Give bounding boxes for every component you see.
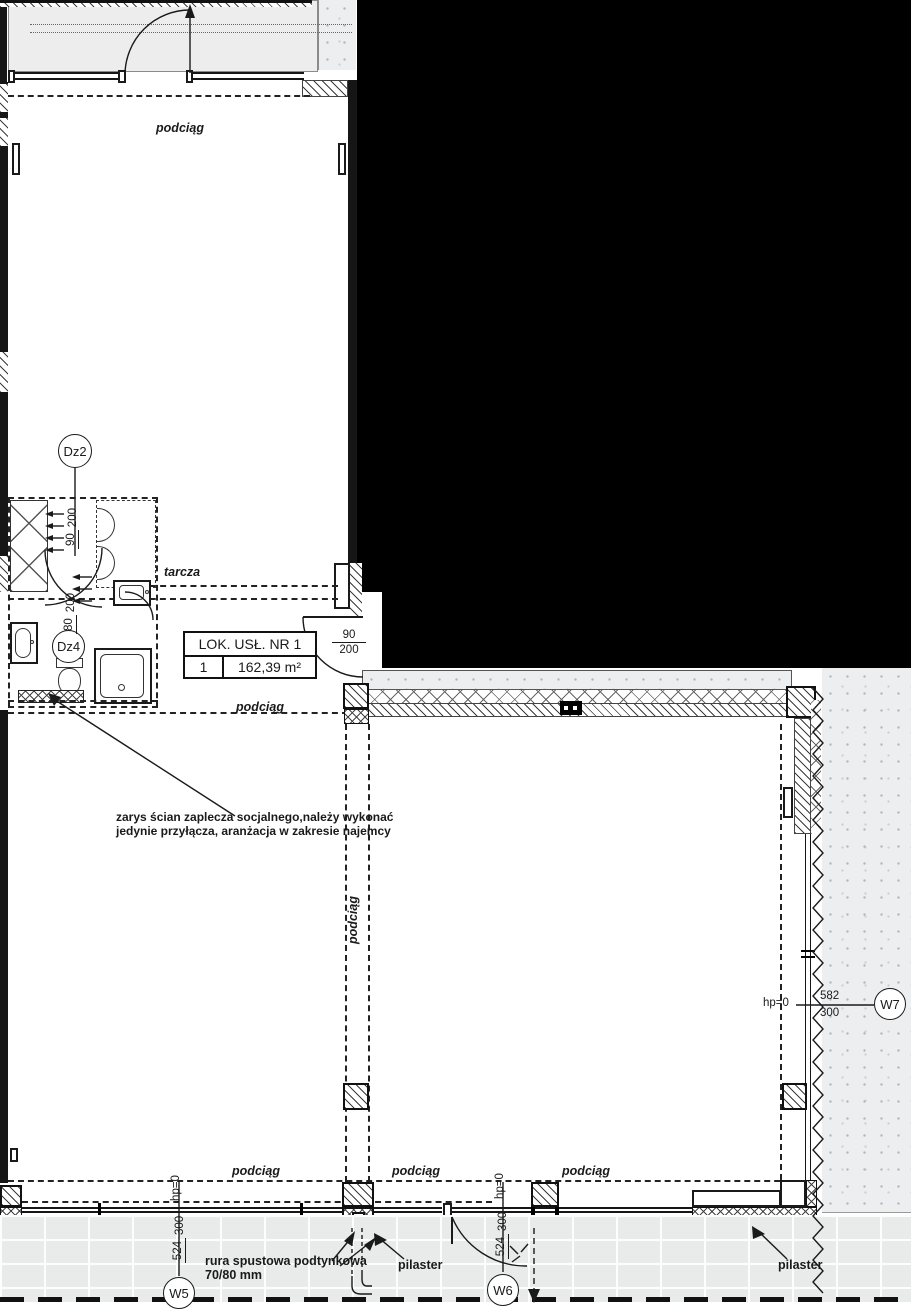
door-dimension-middle: 90 200 xyxy=(332,629,366,656)
datum-tag-text: W7 xyxy=(880,997,900,1012)
note-leader-arrow xyxy=(48,693,61,706)
datum-tag-w7: W7 xyxy=(874,988,906,1020)
dim-den: 200 xyxy=(332,643,366,656)
hp-label-w5: hp=0 xyxy=(169,1158,183,1218)
datum-dimension-w5: 524 300 xyxy=(164,1214,194,1262)
beam-label: podciąg xyxy=(232,700,288,714)
datum-tag-text: W5 xyxy=(169,1286,189,1301)
door-swing-arc xyxy=(125,10,190,75)
beam-label-vertical: podciąg xyxy=(346,885,360,955)
hp-label-w6: hp=0 xyxy=(493,1156,507,1216)
datum-tag-text: W6 xyxy=(493,1283,513,1298)
datum-tag-w6: W6 xyxy=(487,1274,519,1306)
pilaster-leader xyxy=(758,1231,787,1259)
dim-den: 200 xyxy=(66,505,79,530)
door-dimension-dz2: 90 200 xyxy=(57,505,87,549)
note-line: zarys ścian zaplecza socjalnego,należy w… xyxy=(116,810,368,824)
door-dimension-dz4: 80 200 xyxy=(55,590,85,634)
dim-num: 80 xyxy=(63,615,77,634)
dim-num: 90 xyxy=(65,530,79,549)
rura-leader-arrow xyxy=(364,1237,376,1251)
pilaster-label: pilaster xyxy=(778,1258,822,1272)
door-arrow xyxy=(185,4,195,18)
beam-label: podciąg xyxy=(150,121,210,135)
hp-label-w7: hp=0 xyxy=(763,997,789,1009)
unit-number: 1 xyxy=(185,657,224,677)
dim-num: 90 xyxy=(332,629,366,643)
note-leader xyxy=(52,698,235,816)
unit-table-header: LOK. USŁ. NR 1 xyxy=(185,633,315,657)
door-swing-arc xyxy=(125,592,153,620)
unit-area: 162,39 m² xyxy=(224,657,315,677)
datum-dimension-w6: 524 300 xyxy=(487,1210,517,1258)
beam-label: podciąg xyxy=(228,1164,284,1178)
downpipe-arrow xyxy=(528,1289,540,1303)
pilaster-leader-arrow xyxy=(374,1233,387,1246)
door-tag-dz2: Dz2 xyxy=(58,434,92,468)
rura-line: 70/80 mm xyxy=(205,1268,365,1282)
dim-num: 524 xyxy=(172,1238,186,1263)
datum-den-w7: 300 xyxy=(820,1007,839,1019)
downpipe-note: rura spustowa podtynkowa 70/80 mm xyxy=(205,1254,365,1282)
pilaster-label: pilaster xyxy=(398,1258,442,1272)
unit-area-table: LOK. USŁ. NR 1 1 162,39 m² xyxy=(183,631,317,679)
tenant-note: zarys ścian zaplecza socjalnego,należy w… xyxy=(116,810,368,838)
floor-plan: podciąg podciąg podciąg podciąg podciąg … xyxy=(0,0,911,1310)
dim-num: 524 xyxy=(495,1234,509,1259)
beam-label: podciąg xyxy=(558,1164,614,1178)
datum-num-w7: 582 xyxy=(820,990,839,1002)
rura-line: rura spustowa podtynkowa xyxy=(205,1254,365,1268)
datum-tag-w5: W5 xyxy=(163,1277,195,1309)
dim-den: 300 xyxy=(173,1213,186,1238)
dim-den: 300 xyxy=(496,1209,509,1234)
beam-label: podciąg xyxy=(388,1164,444,1178)
door-tag-text: Dz2 xyxy=(63,444,86,459)
dim-den: 200 xyxy=(64,590,77,615)
door-tag-dz4: Dz4 xyxy=(52,630,85,663)
pilaster-leader-arrow xyxy=(752,1226,765,1239)
door-tag-text: Dz4 xyxy=(57,639,80,654)
note-line: jedynie przyłącza, aranżacja w zakresie … xyxy=(116,824,368,838)
linework-overlay xyxy=(0,0,911,1310)
tarcza-label: tarcza xyxy=(164,565,200,579)
